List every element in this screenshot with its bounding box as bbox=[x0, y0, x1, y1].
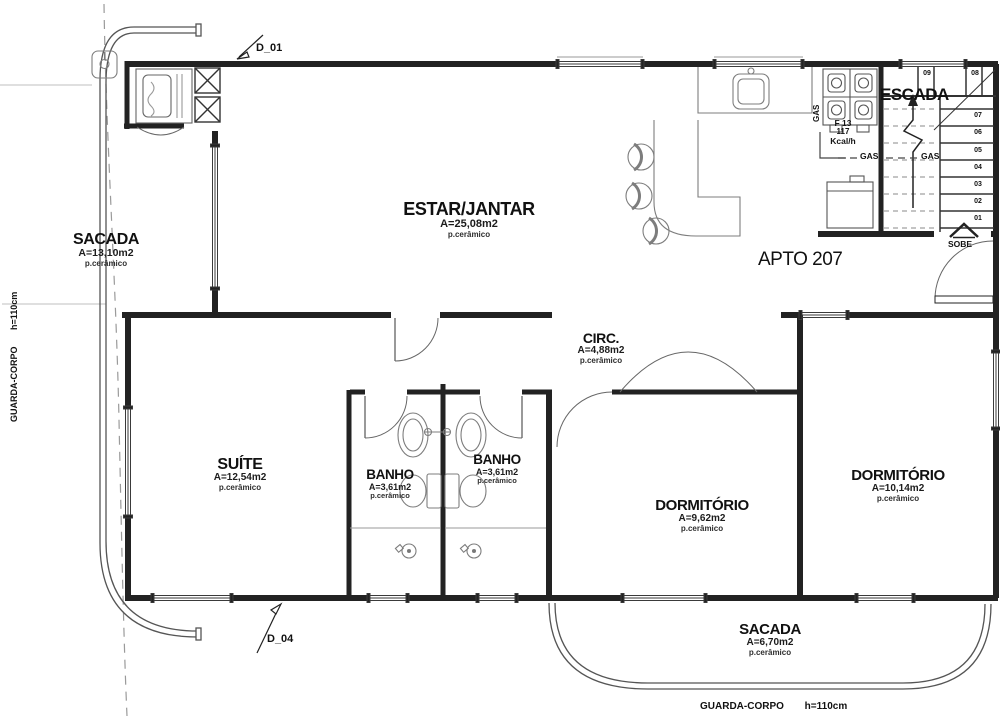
room-label-sacada-bottom: SACADA A=6,70m2 p.cerâmico bbox=[739, 622, 801, 658]
window-banho2-south bbox=[476, 594, 518, 603]
step-number-03: 03 bbox=[974, 181, 982, 188]
door-circ-wide bbox=[620, 352, 757, 392]
stool-3 bbox=[643, 218, 669, 244]
window-top-1 bbox=[556, 57, 644, 69]
step-number-04: 04 bbox=[974, 164, 982, 171]
sobe-arrow-icon bbox=[950, 224, 978, 238]
window-dorm2-south bbox=[855, 594, 915, 603]
washbasin-2 bbox=[456, 413, 486, 457]
window-dorm2-north bbox=[799, 311, 849, 320]
shaft-x-2 bbox=[195, 97, 220, 122]
step-number-02: 02 bbox=[974, 198, 982, 205]
room-label-banho-1: BANHO A=3,61m2 p.cerâmico bbox=[366, 468, 414, 500]
fridge bbox=[827, 176, 873, 228]
property-dashed-line bbox=[0, 4, 127, 716]
room-label-estar-jantar: ESTAR/JANTAR A=25,08m2 p.cerâmico bbox=[403, 200, 535, 240]
windows bbox=[124, 57, 1000, 603]
apartment-number: APTO 207 bbox=[758, 249, 842, 271]
walls bbox=[122, 61, 998, 601]
stool-1 bbox=[628, 144, 654, 170]
balcony-door-dorm1 bbox=[621, 594, 707, 603]
step-number-09: 09 bbox=[923, 70, 931, 77]
gas-line-label-left: GAS bbox=[860, 151, 878, 161]
door-tag-d04: D_04 bbox=[267, 633, 293, 645]
step-number-06: 06 bbox=[974, 129, 982, 136]
window-estar-west bbox=[211, 144, 220, 290]
step-number-07: 07 bbox=[974, 112, 982, 119]
window-dorm2-east bbox=[992, 350, 1000, 430]
guardrail-label-bottom: GUARDA-CORPO h=110cm bbox=[700, 701, 847, 712]
window-suite-west bbox=[124, 406, 133, 518]
door-dorm1 bbox=[557, 392, 612, 447]
entry-door bbox=[935, 241, 993, 303]
room-label-sacada-left: SACADA A=13,10m2 p.cerâmico bbox=[73, 231, 139, 268]
window-top-3 bbox=[899, 60, 967, 69]
doors bbox=[137, 127, 993, 447]
stool-2 bbox=[626, 183, 652, 209]
door-leader-d04 bbox=[257, 604, 281, 653]
shower-2 bbox=[446, 528, 546, 558]
gas-riser-label: GAS bbox=[812, 105, 821, 122]
floor-plan-drawing bbox=[0, 0, 1000, 719]
room-label-dormitorio-2: DORMITÓRIO A=10,14m2 p.cerâmico bbox=[851, 468, 945, 504]
room-label-dormitorio-1: DORMITÓRIO A=9,62m2 p.cerâmico bbox=[655, 498, 749, 534]
gas-line-label-right: GAS bbox=[921, 151, 939, 161]
room-label-suite: SUÍTE A=12,54m2 p.cerâmico bbox=[214, 456, 267, 493]
guardrail-label-left: GUARDA-CORPO h=110cm bbox=[9, 292, 19, 422]
door-banho-1 bbox=[365, 396, 407, 438]
washbasin-1 bbox=[398, 413, 428, 457]
breakfast-bar bbox=[654, 120, 740, 236]
laundry-tank bbox=[136, 69, 192, 123]
gas-heater-label: F 13 117 Kcal/h bbox=[830, 119, 856, 146]
window-banho1-south bbox=[367, 594, 409, 603]
balcony-rails bbox=[100, 24, 991, 689]
shower-1 bbox=[350, 528, 440, 558]
room-label-banho-2: BANHO A=3,61m2 p.cerâmico bbox=[473, 453, 521, 485]
sobe-label: SOBE bbox=[948, 239, 972, 249]
step-number-01: 01 bbox=[974, 215, 982, 222]
balcony-sink bbox=[92, 51, 117, 78]
room-label-circ: CIRC. A=4,88m2 p.cerâmico bbox=[578, 331, 625, 366]
shaft-x-1 bbox=[195, 68, 220, 93]
window-suite-south bbox=[151, 594, 233, 603]
stair-direction-arrow bbox=[904, 94, 922, 208]
door-suite bbox=[395, 318, 438, 361]
door-tag-leaders bbox=[237, 35, 281, 653]
window-top-2 bbox=[713, 57, 804, 69]
stair-label: ESCADA bbox=[880, 85, 949, 105]
step-number-08: 08 bbox=[971, 70, 979, 77]
door-tag-d01: D_01 bbox=[256, 42, 282, 54]
step-number-05: 05 bbox=[974, 147, 982, 154]
floor-plan: SACADA A=13,10m2 p.cerâmico ESTAR/JANTAR… bbox=[0, 0, 1000, 719]
kitchen-counter bbox=[698, 67, 812, 113]
